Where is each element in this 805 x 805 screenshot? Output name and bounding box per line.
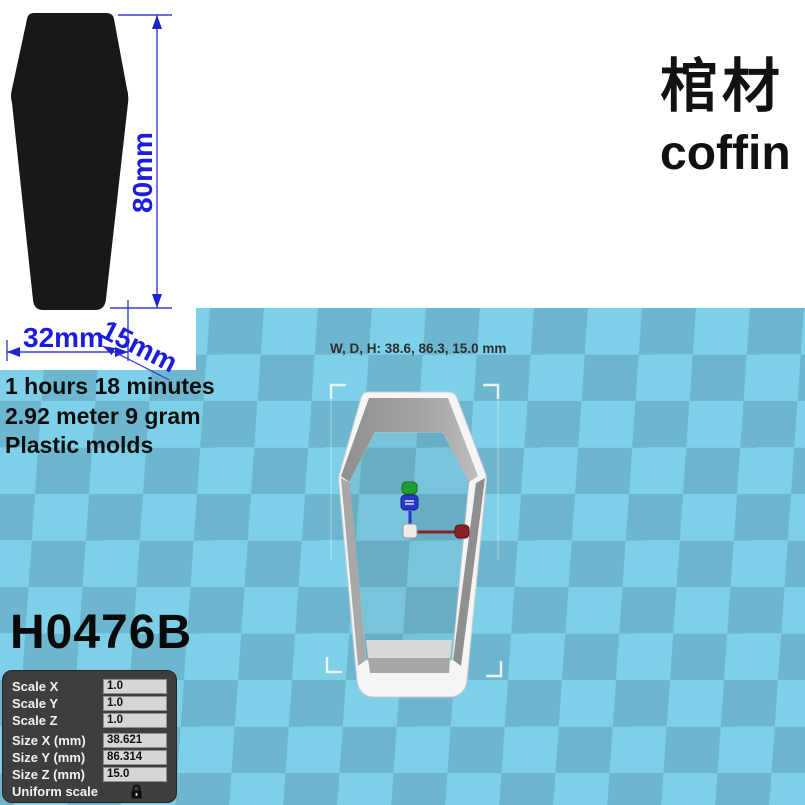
depth-dimension: 15mm bbox=[94, 314, 193, 380]
scale-y-field[interactable]: 1.0 bbox=[103, 696, 167, 711]
bracket-top-right-icon bbox=[483, 385, 498, 399]
title-english: coffin bbox=[660, 130, 791, 178]
arrow-down-icon bbox=[152, 294, 162, 308]
model-viewport bbox=[315, 372, 515, 717]
dimension-diagram: 80mm 32mm 15mm bbox=[0, 0, 215, 380]
gizmo-y-handle-icon[interactable] bbox=[401, 495, 418, 510]
size-x-field[interactable]: 38.621 bbox=[103, 733, 167, 748]
depth-label: 15mm bbox=[96, 314, 182, 378]
print-time: 1 hours 18 minutes bbox=[5, 372, 215, 402]
size-x-row: Size X (mm) 38.621 bbox=[12, 733, 167, 748]
scale-x-field[interactable]: 1.0 bbox=[103, 679, 167, 694]
size-z-field[interactable]: 15.0 bbox=[103, 767, 167, 782]
model-dimensions-label: W, D, H: 38.6, 86.3, 15.0 mm bbox=[330, 341, 506, 356]
cutter-cavity bbox=[349, 432, 469, 660]
bracket-bottom-left-icon bbox=[327, 657, 342, 672]
scale-z-row: Scale Z 1.0 bbox=[12, 713, 167, 728]
width-label: 32mm bbox=[23, 322, 104, 353]
title-chinese: 棺材 bbox=[660, 58, 791, 116]
arrow-left-icon bbox=[7, 347, 20, 357]
uniform-scale-label: Uniform scale bbox=[12, 784, 105, 799]
size-y-row: Size Y (mm) 86.314 bbox=[12, 750, 167, 765]
product-image: 80mm 32mm 15mm 棺材 coffin 1 hours 18 minu… bbox=[0, 0, 805, 805]
lock-icon bbox=[130, 784, 143, 799]
scale-y-row: Scale Y 1.0 bbox=[12, 696, 167, 711]
height-label: 80mm bbox=[127, 132, 158, 213]
gizmo-center-handle-icon[interactable] bbox=[403, 524, 417, 538]
size-x-label: Size X (mm) bbox=[12, 733, 103, 748]
size-y-label: Size Y (mm) bbox=[12, 750, 103, 765]
print-stats: 1 hours 18 minutes 2.92 meter 9 gram Pla… bbox=[5, 372, 215, 461]
scale-y-label: Scale Y bbox=[12, 696, 103, 711]
cutter-flange-light bbox=[366, 640, 452, 658]
scale-panel: Scale X 1.0 Scale Y 1.0 Scale Z 1.0 Size… bbox=[2, 670, 177, 803]
scale-x-row: Scale X 1.0 bbox=[12, 679, 167, 694]
bracket-top-left-icon bbox=[331, 385, 346, 399]
cutter-flange-dark bbox=[368, 658, 450, 673]
product-code: H0476B bbox=[10, 605, 192, 660]
scale-z-field[interactable]: 1.0 bbox=[103, 713, 167, 728]
arrow-up-icon bbox=[152, 15, 162, 29]
size-z-label: Size Z (mm) bbox=[12, 767, 103, 782]
gizmo-x-handle-icon[interactable] bbox=[455, 525, 469, 538]
material-note: Plastic molds bbox=[5, 431, 215, 461]
uniform-scale-toggle[interactable] bbox=[105, 784, 167, 799]
filament-usage: 2.92 meter 9 gram bbox=[5, 402, 215, 432]
gizmo-z-handle-icon[interactable] bbox=[402, 482, 417, 494]
bracket-bottom-right-icon bbox=[486, 661, 501, 676]
scale-z-label: Scale Z bbox=[12, 713, 103, 728]
uniform-scale-row: Uniform scale bbox=[12, 784, 167, 799]
size-y-field[interactable]: 86.314 bbox=[103, 750, 167, 765]
scale-x-label: Scale X bbox=[12, 679, 103, 694]
size-z-row: Size Z (mm) 15.0 bbox=[12, 767, 167, 782]
coffin-silhouette bbox=[11, 13, 128, 310]
product-title: 棺材 coffin bbox=[660, 58, 791, 178]
